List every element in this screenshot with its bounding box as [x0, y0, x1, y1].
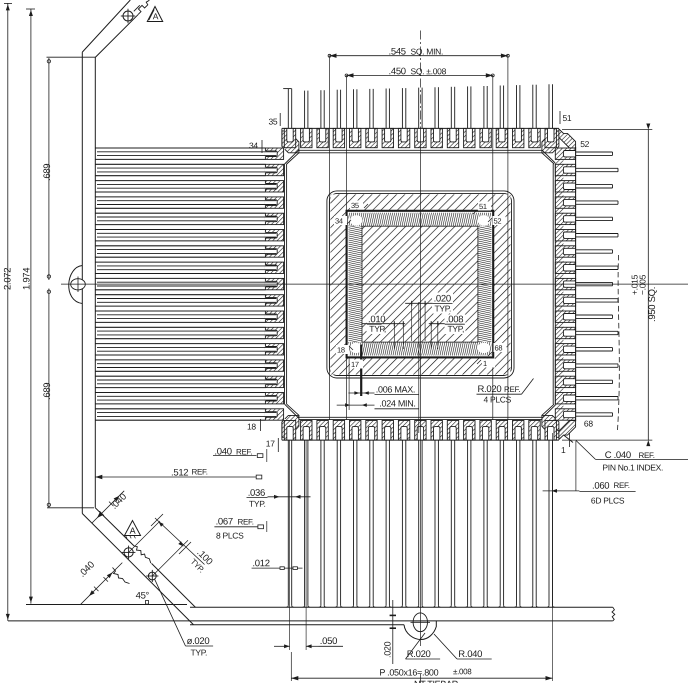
svg-text:.050: .050 [320, 636, 337, 647]
svg-text:52: 52 [493, 217, 501, 226]
svg-text:PIN No.1 INDEX.: PIN No.1 INDEX. [602, 463, 663, 473]
svg-text:2.072: 2.072 [2, 268, 13, 290]
svg-text:34: 34 [249, 141, 258, 151]
svg-text:.012: .012 [252, 558, 269, 569]
svg-text:REF.: REF. [236, 448, 252, 457]
svg-text:±.008: ±.008 [453, 667, 472, 676]
svg-text:34: 34 [335, 217, 343, 226]
svg-text:4 PLCS: 4 PLCS [483, 395, 511, 405]
svg-text:.950 SQ.: .950 SQ. [647, 287, 658, 322]
svg-text:SQ. ±.008: SQ. ±.008 [410, 66, 446, 76]
svg-text:A: A [130, 526, 136, 536]
svg-text:TYP,: TYP, [369, 324, 386, 334]
svg-text:17: 17 [351, 360, 359, 369]
svg-text:51: 51 [562, 113, 571, 123]
svg-text:A: A [153, 11, 159, 21]
svg-text:.036: .036 [248, 488, 265, 499]
svg-text:.689: .689 [42, 164, 53, 181]
svg-text:35: 35 [268, 117, 277, 127]
svg-text:.006 MAX.: .006 MAX. [376, 385, 415, 395]
svg-text:1: 1 [483, 359, 487, 368]
svg-text:.020: .020 [382, 641, 392, 658]
svg-text:18: 18 [247, 422, 256, 432]
svg-text:68: 68 [494, 344, 502, 353]
svg-text:45°: 45° [136, 591, 150, 602]
svg-text:REF.: REF. [613, 481, 629, 490]
svg-text:TYP.: TYP. [249, 499, 266, 509]
svg-text:.060: .060 [592, 481, 609, 492]
svg-text:TYP,: TYP, [447, 324, 464, 334]
svg-text:.024 MIN.: .024 MIN. [379, 399, 415, 409]
svg-text:ø.020: ø.020 [187, 636, 210, 647]
svg-text:1.974: 1.974 [21, 268, 32, 290]
svg-text:6D PLCS: 6D PLCS [591, 496, 625, 506]
svg-text:REF.: REF. [638, 451, 654, 460]
svg-text:.689: .689 [42, 383, 53, 400]
svg-text:−.005: −.005 [638, 274, 648, 295]
svg-text:51: 51 [479, 202, 487, 211]
svg-text:35: 35 [351, 201, 359, 210]
svg-text:TYP.: TYP. [190, 648, 207, 658]
svg-text:.512: .512 [171, 468, 188, 479]
svg-text:68: 68 [584, 419, 593, 429]
svg-text:SQ. MIN.: SQ. MIN. [410, 47, 443, 57]
svg-text:1: 1 [561, 445, 566, 455]
svg-text:R.020: R.020 [407, 649, 431, 660]
svg-text:18: 18 [337, 346, 345, 355]
svg-text:52: 52 [580, 139, 589, 149]
svg-text:17: 17 [266, 439, 275, 449]
svg-text:P .050x16=.800: P .050x16=.800 [379, 668, 438, 678]
svg-text:REF.: REF. [504, 385, 520, 394]
svg-text:R.020: R.020 [477, 384, 501, 395]
svg-text:.450: .450 [388, 66, 405, 77]
svg-text:.545: .545 [388, 47, 405, 58]
svg-text:REF.: REF. [237, 518, 253, 527]
svg-text:REF.: REF. [191, 468, 207, 477]
svg-text:8 PLCS: 8 PLCS [216, 531, 244, 541]
svg-text:TYP.: TYP. [434, 304, 451, 314]
svg-text:R.040: R.040 [458, 649, 482, 660]
svg-text:.067: .067 [216, 517, 233, 528]
